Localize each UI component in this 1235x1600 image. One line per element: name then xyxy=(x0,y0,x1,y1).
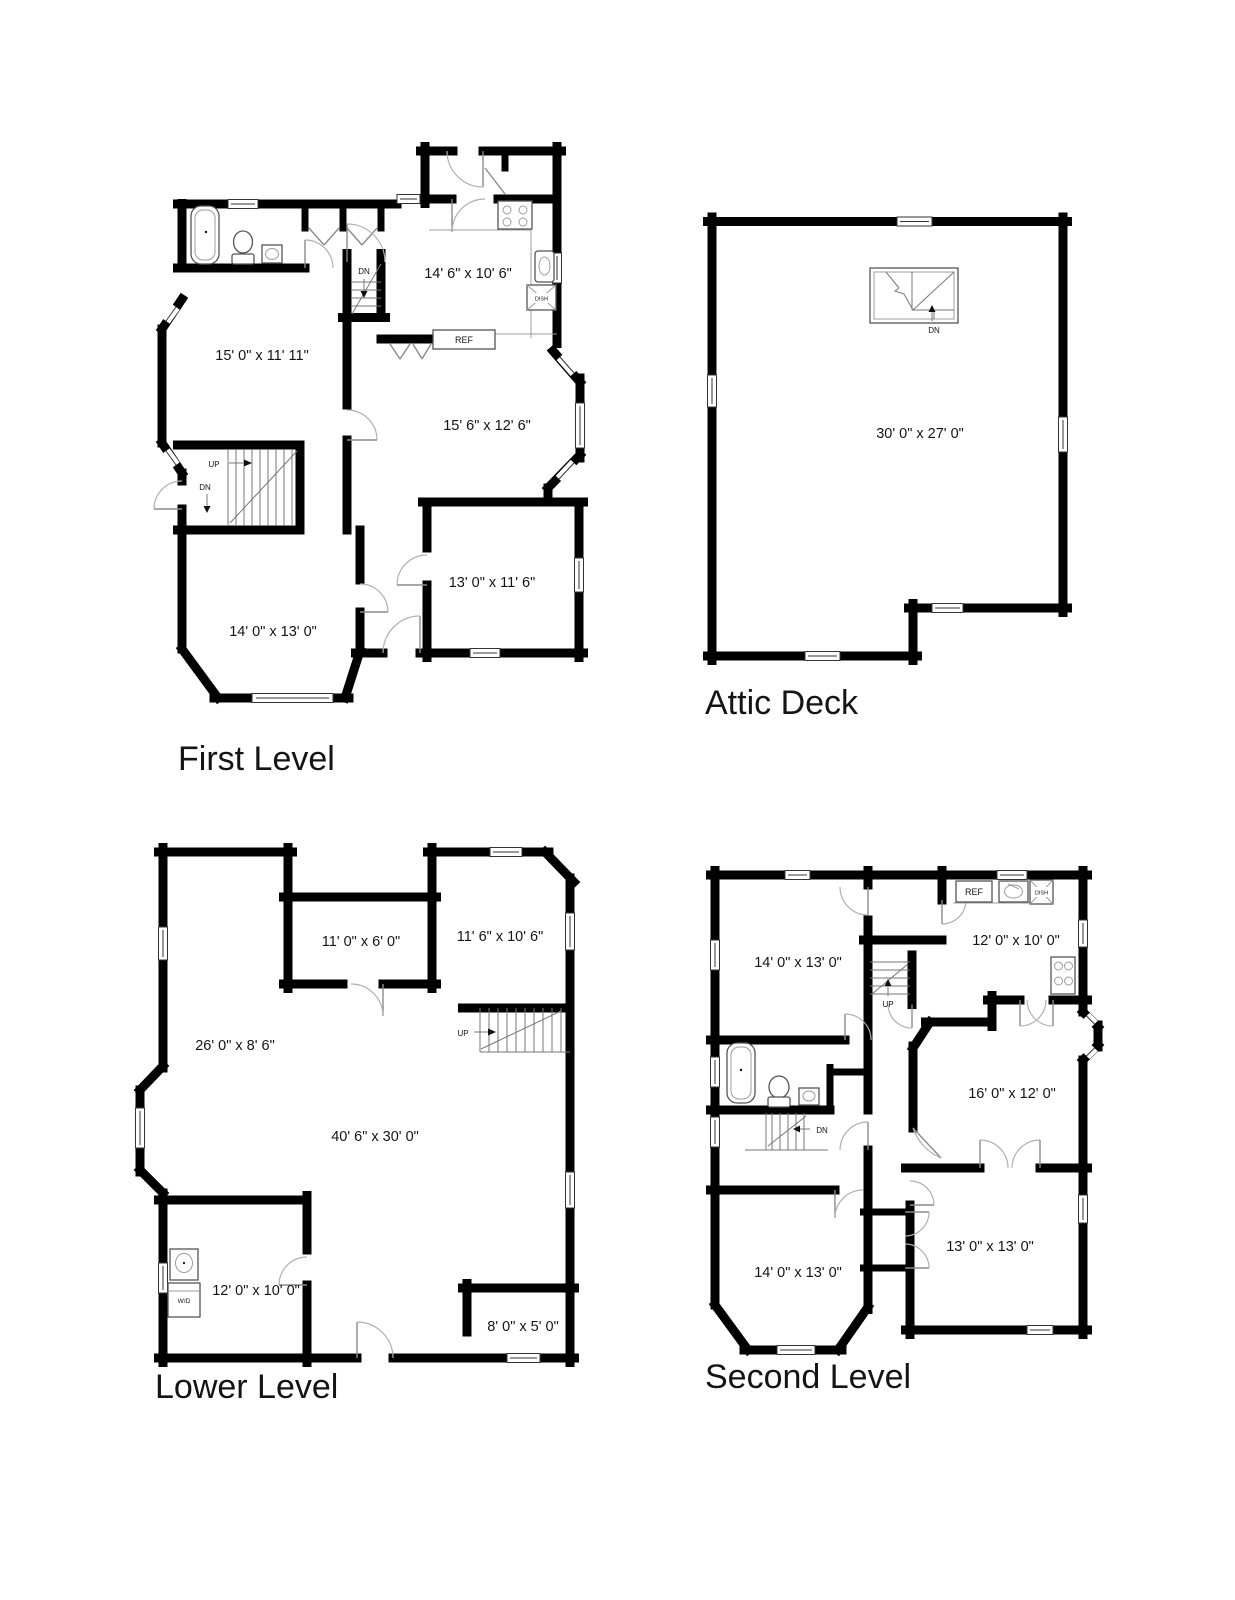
floor-plan-lower-level: UP W/D 11' 0" x 6' 0" 11' 6" x 10' 6" 26… xyxy=(136,848,575,1407)
stair-dn-label: DN xyxy=(358,267,370,276)
room-label-deck: 30' 0" x 27' 0" xyxy=(876,426,964,442)
stair-dn-label: DN xyxy=(928,326,940,335)
stair-up-label: UP xyxy=(208,460,219,469)
walls xyxy=(140,848,575,1363)
toilet-icon xyxy=(234,231,253,253)
room-label-main: 40' 6" x 30' 0" xyxy=(331,1129,419,1145)
stove-icon xyxy=(498,201,532,229)
wd-label: W/D xyxy=(178,1298,191,1305)
room-label-master: 16' 0" x 12' 0" xyxy=(968,1086,1056,1102)
stair-up-label: UP xyxy=(457,1029,468,1038)
plan-title-attic-deck: Attic Deck xyxy=(705,684,859,722)
stove-icon xyxy=(1051,957,1075,994)
stairs-up: UP xyxy=(870,962,910,1009)
room-labels: 14' 6" x 10' 6" 15' 0" x 11' 11" 15' 6" … xyxy=(215,266,535,640)
bath-fixtures xyxy=(727,1043,819,1107)
room-labels: 11' 0" x 6' 0" 11' 6" x 10' 6" 26' 0" x … xyxy=(195,929,558,1335)
room-label-side: 26' 0" x 8' 6" xyxy=(195,1038,275,1054)
room-label-dining: 15' 6" x 12' 6" xyxy=(443,418,531,434)
stairs-up-down: UP DN xyxy=(199,449,297,526)
plan-title-second-level: Second Level xyxy=(705,1358,911,1396)
doors xyxy=(279,984,393,1358)
room-label-bed3: 13' 0" x 13' 0" xyxy=(946,1239,1034,1255)
stair-up-label: UP xyxy=(882,1000,893,1009)
bath-fixtures xyxy=(191,206,282,264)
room-label-rec: 11' 6" x 10' 6" xyxy=(457,929,544,945)
floor-plan-first-level: UP DN DN REF DISH xyxy=(154,147,585,779)
stair-dn-label: DN xyxy=(199,483,211,492)
plan-title-first-level: First Level xyxy=(178,740,335,778)
ref-label: REF xyxy=(965,887,984,897)
laundry-fixtures: W/D xyxy=(168,1249,200,1317)
room-label-nook: 8' 0" x 5' 0" xyxy=(487,1319,558,1335)
stair-dn-label: DN xyxy=(816,1126,828,1135)
room-label-storage: 11' 0" x 6' 0" xyxy=(322,934,400,950)
plan-title-lower-level: Lower Level xyxy=(155,1368,338,1406)
stairs-dn: DN xyxy=(745,1113,828,1150)
floor-plan-sheet: UP DN DN REF DISH xyxy=(0,0,1235,1600)
room-label-family: 14' 0" x 13' 0" xyxy=(229,624,317,640)
toilet-icon xyxy=(769,1076,789,1098)
dish-label: DISH xyxy=(535,297,548,303)
room-label-bed1: 14' 0" x 13' 0" xyxy=(754,955,842,971)
stairs-up: UP xyxy=(457,1008,570,1052)
floor-plan-second-level: UP DN REF DISH xyxy=(705,871,1098,1397)
room-label-kitchen: 12' 0" x 10' 0" xyxy=(972,933,1060,949)
room-label-laundry: 12' 0" x 10' 0" xyxy=(212,1283,300,1299)
kitchen-sink-icon xyxy=(535,251,554,282)
floor-plan-attic-deck: DN 30' 0" x 27' 0" Attic Deck xyxy=(705,217,1068,722)
stairwell: DN xyxy=(870,268,958,335)
room-label-living: 15' 0" x 11' 11" xyxy=(215,348,309,364)
room-label-kitchen: 14' 6" x 10' 6" xyxy=(424,266,512,282)
kitchen-sink-icon xyxy=(999,881,1028,902)
dish-label: DISH xyxy=(1035,891,1048,897)
ref-label: REF xyxy=(455,335,474,345)
room-label-bed4: 14' 0" x 13' 0" xyxy=(754,1265,842,1281)
stairwell-box xyxy=(870,268,958,323)
room-label-den: 13' 0" x 11' 6" xyxy=(449,575,536,591)
